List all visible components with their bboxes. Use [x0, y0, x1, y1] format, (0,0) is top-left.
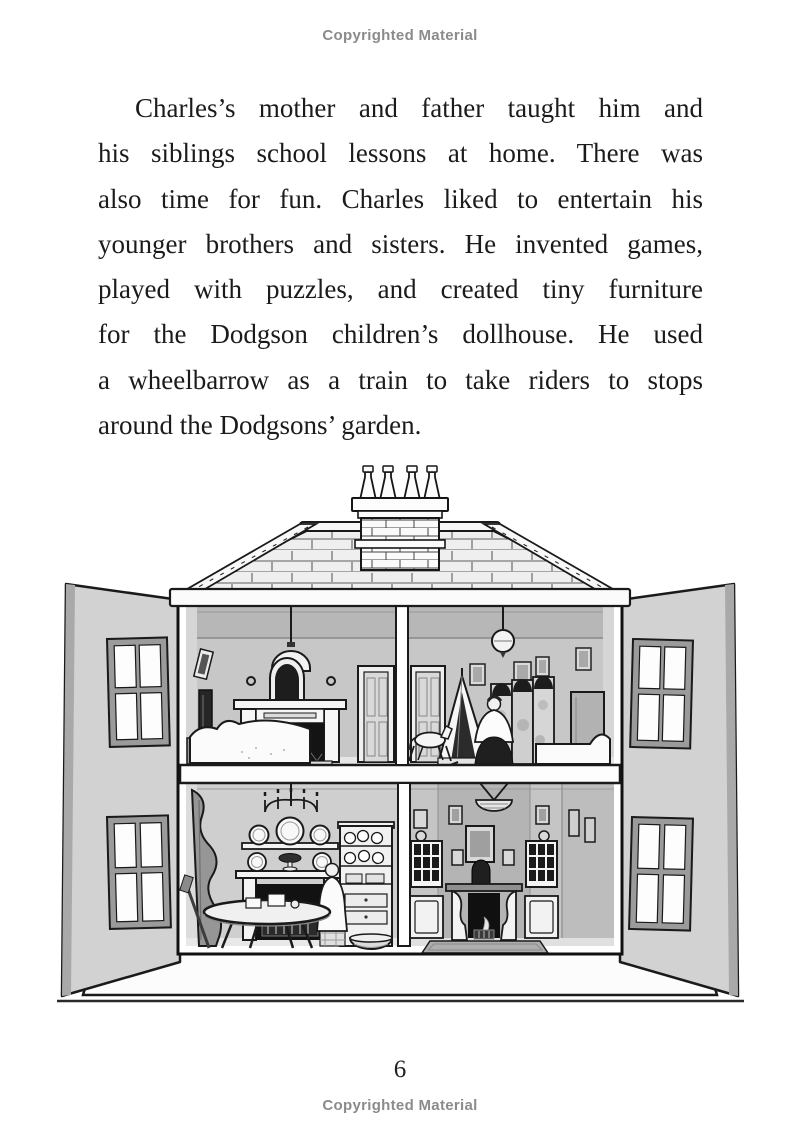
paragraph-line: a wheelbarrow as a train to take riders …	[98, 358, 703, 403]
wall-cabinets	[410, 896, 558, 938]
pendant-lamp	[272, 606, 310, 671]
door-window	[630, 639, 693, 749]
welsh-dresser	[338, 822, 394, 946]
copyright-notice-top: Copyrighted Material	[0, 27, 800, 44]
door-window	[107, 815, 171, 929]
round-table	[204, 894, 330, 948]
parlor-pictures	[414, 806, 595, 865]
right-door	[620, 584, 738, 996]
rocking-horse	[402, 726, 458, 769]
parlor-fireplace	[446, 860, 522, 940]
nursery-door	[411, 666, 445, 762]
paned-window-left	[411, 841, 442, 887]
paragraph-line: for the Dodgson children’s dollhouse. He…	[98, 312, 703, 357]
door-window	[107, 637, 170, 747]
wavy-shelf	[192, 790, 221, 946]
copyright-notice-bottom: Copyrighted Material	[0, 1097, 800, 1114]
bedroom-door	[358, 666, 394, 762]
bed-right	[536, 692, 610, 764]
dollhouse-base	[57, 954, 744, 1001]
parlor-room	[410, 783, 614, 953]
upper-center-wall	[396, 606, 408, 765]
kitchen-room	[180, 783, 398, 949]
folding-screen	[491, 676, 554, 764]
plate-shelf	[242, 818, 338, 850]
book-page: Copyrighted Material Charles’s mother an…	[0, 0, 800, 1141]
broom	[180, 875, 209, 948]
canopy-crib	[438, 668, 489, 766]
paragraph-line: played with puzzles, and created tiny fu…	[98, 267, 703, 312]
page-number: 6	[0, 1056, 800, 1084]
house-body	[178, 598, 622, 954]
bed	[187, 690, 310, 764]
parlor-chandelier	[476, 783, 512, 811]
arched-mirror	[270, 658, 304, 706]
floor-divider	[180, 765, 620, 783]
bedroom-fireplace	[234, 700, 346, 765]
nursery-room	[402, 606, 614, 769]
rug	[422, 941, 548, 953]
chimney	[352, 466, 448, 570]
nanny-figure	[475, 697, 513, 765]
wall-pictures	[470, 648, 591, 685]
paned-window-right	[526, 841, 557, 887]
paragraph-line: Charles’s mother and father taught him a…	[98, 86, 703, 131]
paragraph-line: younger brothers and sisters. He invente…	[98, 222, 703, 267]
roof	[170, 522, 630, 606]
paragraph-line: around the Dodgsons’ garden.	[98, 403, 703, 448]
paragraph-line: his siblings school lessons at home. The…	[98, 131, 703, 176]
kitchen-fireplace	[236, 853, 344, 940]
candelabra-chandelier	[265, 783, 317, 812]
tilted-picture	[194, 649, 213, 679]
body-paragraph: Charles’s mother and father taught him a…	[98, 86, 703, 448]
globe-lamp	[492, 606, 514, 658]
cook-figure	[317, 864, 347, 947]
door-window	[629, 817, 693, 931]
bedroom-room	[186, 606, 396, 765]
left-door	[62, 584, 180, 996]
paragraph-line: also time for fun. Charles liked to ente…	[98, 177, 703, 222]
chimney-pots	[360, 466, 440, 500]
basket	[350, 934, 392, 949]
lower-center-wall	[398, 783, 410, 946]
